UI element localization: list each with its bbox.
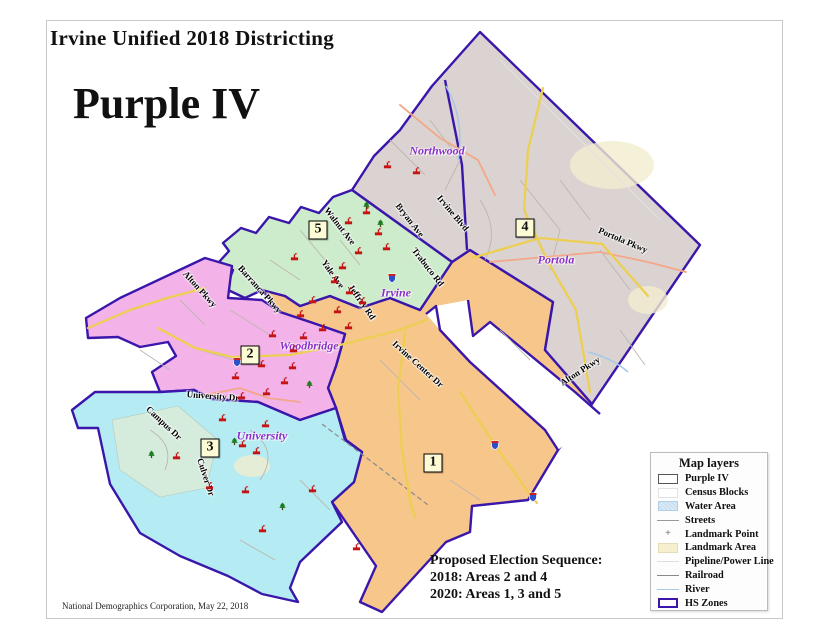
legend-item-water-area: Water Area: [655, 500, 763, 514]
streets-swatch: [655, 520, 681, 521]
legend-item-hs-zones: HS Zones: [655, 596, 763, 610]
legend-rows: Purple IVCensus BlocksWater AreaStreets+…: [655, 472, 763, 610]
legend-label-hs-zones: HS Zones: [685, 598, 728, 609]
election-sequence-2018: 2018: Areas 2 and 4: [430, 569, 602, 586]
legend-item-streets: Streets: [655, 513, 763, 527]
election-sequence-heading: Proposed Election Sequence:: [430, 552, 602, 569]
railroad-swatch: [655, 575, 681, 576]
pipeline-power-line-swatch: [655, 561, 681, 562]
plan-name: Purple IV: [73, 78, 260, 129]
map-layers-legend: Map layers Purple IVCensus BlocksWater A…: [650, 452, 768, 611]
legend-label-purple-iv: Purple IV: [685, 473, 729, 484]
legend-label-river: River: [685, 584, 710, 595]
legend-label-landmark-area: Landmark Area: [685, 542, 756, 553]
districting-map-document: { "page": { "title": "Irvine Unified 201…: [0, 0, 825, 638]
legend-item-landmark-area: Landmark Area: [655, 541, 763, 555]
credit-footer: National Demographics Corporation, May 2…: [62, 601, 248, 611]
document-title: Irvine Unified 2018 Districting: [50, 26, 334, 51]
legend-item-purple-iv: Purple IV: [655, 472, 763, 486]
legend-label-census-blocks: Census Blocks: [685, 487, 748, 498]
water-area-swatch: [655, 501, 681, 511]
election-sequence-2020: 2020: Areas 1, 3 and 5: [430, 586, 602, 603]
legend-label-streets: Streets: [685, 515, 715, 526]
legend-label-water-area: Water Area: [685, 501, 736, 512]
landmark-point-swatch: +: [655, 529, 681, 539]
legend-label-railroad: Railroad: [685, 570, 724, 581]
election-sequence-note: Proposed Election Sequence: 2018: Areas …: [430, 552, 602, 603]
landmark-area-swatch: [655, 543, 681, 553]
legend-item-river: River: [655, 582, 763, 596]
legend-item-railroad: Railroad: [655, 569, 763, 583]
purple-iv-swatch: [655, 474, 681, 484]
legend-item-pipeline-power-line: Pipeline/Power Line: [655, 555, 763, 569]
legend-item-census-blocks: Census Blocks: [655, 486, 763, 500]
legend-title: Map layers: [655, 456, 763, 471]
hs-zones-swatch: [655, 598, 681, 608]
census-blocks-swatch: [655, 488, 681, 498]
legend-label-landmark-point: Landmark Point: [685, 529, 759, 540]
legend-item-landmark-point: +Landmark Point: [655, 527, 763, 541]
river-swatch: [655, 589, 681, 590]
legend-label-pipeline-power-line: Pipeline/Power Line: [685, 556, 774, 567]
